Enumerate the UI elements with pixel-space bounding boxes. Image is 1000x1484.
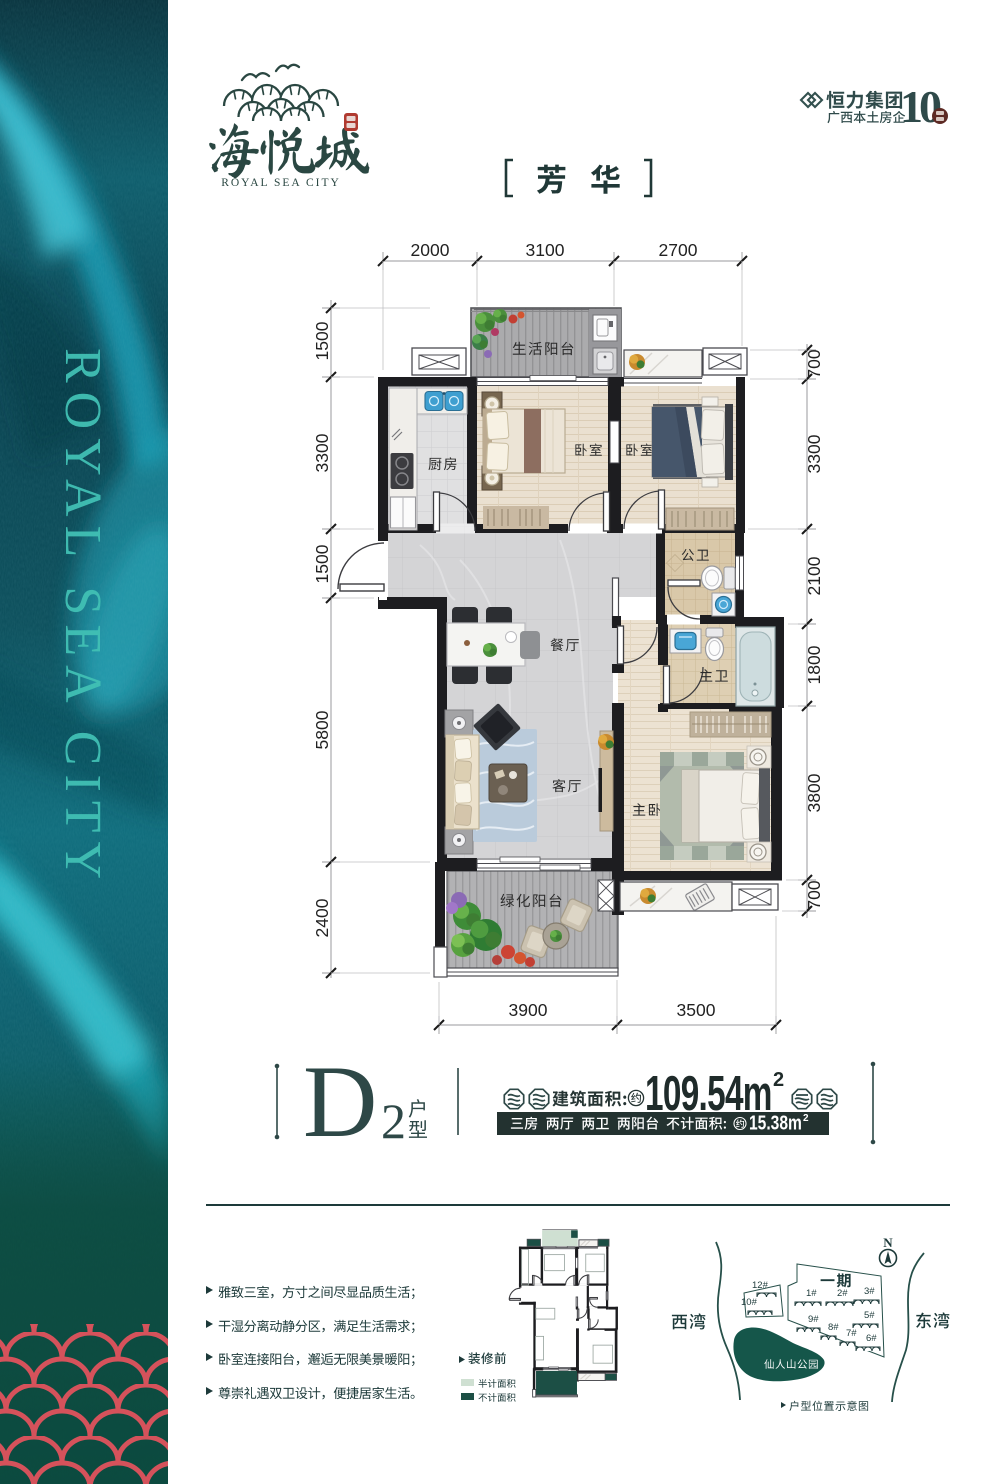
svg-text:3500: 3500	[677, 1000, 716, 1020]
svg-text:1800: 1800	[804, 645, 824, 684]
svg-text:2000: 2000	[411, 240, 450, 260]
svg-text:2700: 2700	[659, 240, 698, 260]
svg-text:12#: 12#	[752, 1280, 769, 1291]
svg-text:3100: 3100	[526, 240, 565, 260]
svg-text:5800: 5800	[312, 710, 332, 749]
svg-text:3900: 3900	[509, 1000, 548, 1020]
svg-text:2#: 2#	[837, 1288, 848, 1299]
svg-text:ROYAL SEA CITY: ROYAL SEA CITY	[221, 177, 341, 189]
svg-text:2: 2	[381, 1093, 406, 1149]
svg-text:8#: 8#	[828, 1322, 839, 1333]
svg-text:3300: 3300	[312, 433, 332, 472]
svg-text:ROYAL SEA CITY: ROYAL SEA CITY	[54, 348, 111, 888]
svg-text:10: 10	[900, 81, 941, 132]
svg-text:N: N	[883, 1235, 893, 1250]
svg-text:1500: 1500	[312, 544, 332, 583]
svg-text:700: 700	[804, 880, 824, 909]
svg-text:D: D	[303, 1045, 377, 1159]
svg-text:10#: 10#	[741, 1297, 758, 1308]
svg-text:3800: 3800	[804, 773, 824, 812]
svg-text:7#: 7#	[846, 1328, 857, 1339]
svg-text:1#: 1#	[806, 1288, 817, 1299]
svg-text:3#: 3#	[864, 1286, 875, 1297]
svg-text:3300: 3300	[804, 434, 824, 473]
svg-text:2400: 2400	[312, 898, 332, 937]
svg-text:1500: 1500	[312, 321, 332, 360]
svg-text:15.38m: 15.38m	[749, 1112, 802, 1134]
svg-text:6#: 6#	[866, 1333, 877, 1344]
svg-text:5#: 5#	[864, 1310, 875, 1321]
svg-text:2: 2	[803, 1113, 809, 1124]
svg-text:2: 2	[773, 1069, 784, 1091]
svg-text:2100: 2100	[804, 556, 824, 595]
svg-text:9#: 9#	[808, 1314, 819, 1325]
svg-text:700: 700	[804, 349, 824, 378]
